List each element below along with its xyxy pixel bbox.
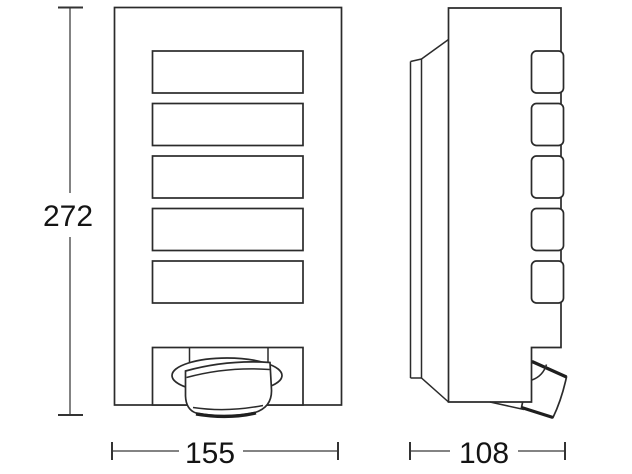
louver-slot [153, 209, 304, 251]
louver-tab [532, 209, 564, 251]
dimension-depth: 108 [410, 437, 565, 470]
side-back-plate-lines [411, 59, 422, 378]
dimension-width: 155 [112, 437, 338, 470]
side-top-chamfer [422, 40, 449, 60]
side-sensor-head-hidden-edge [490, 402, 524, 410]
dimension-depth-label: 108 [459, 437, 509, 470]
dimension-height: 272 [43, 8, 93, 416]
louver-tab [532, 104, 564, 146]
front-view [115, 8, 342, 417]
dimension-height-label: 272 [43, 200, 93, 233]
side-back-plate [411, 40, 449, 403]
louver-tab [532, 156, 564, 198]
dimension-width-label: 155 [185, 437, 235, 470]
louver-tab [532, 261, 564, 303]
louver-slot [153, 261, 304, 303]
drawing-canvas: 272 [0, 0, 632, 474]
louver-slot [153, 104, 304, 146]
louver-tab [532, 51, 564, 93]
side-view [411, 8, 567, 418]
fixture-dimension-drawing: 272 [0, 0, 632, 474]
louver-group [153, 51, 304, 303]
tab-group [532, 51, 564, 303]
side-bottom-chamfer [422, 378, 449, 402]
louver-slot [153, 51, 304, 93]
louver-slot [153, 156, 304, 198]
